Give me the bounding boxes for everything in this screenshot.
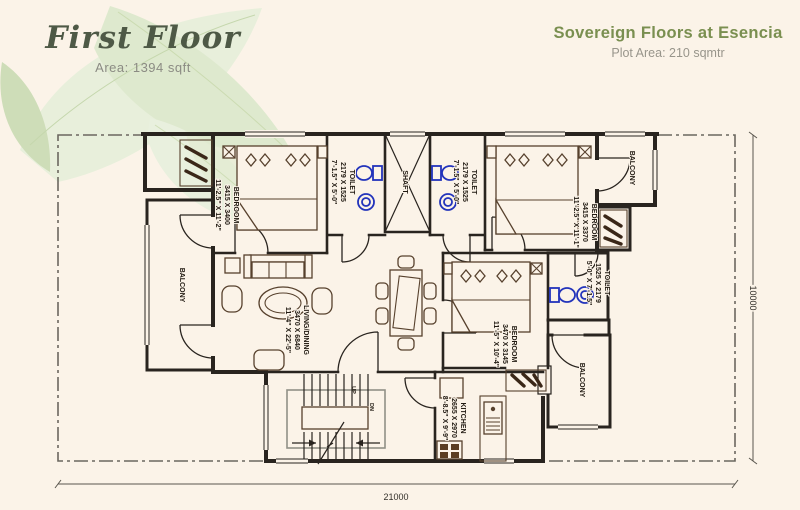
stairs-up-label: UP xyxy=(350,386,356,394)
window xyxy=(558,423,598,431)
svg-text:BEDROOM: BEDROOM xyxy=(232,187,239,224)
room-label-toilet-2: TOILET 2179 X 1525 7'-1.5" X 5'-0" xyxy=(452,160,477,205)
header-left: First Floor Area: 1394 sqft xyxy=(38,20,248,75)
svg-text:11'-5" X 10'-4": 11'-5" X 10'-4" xyxy=(492,321,499,367)
svg-text:7'-1.5" X 5'-0": 7'-1.5" X 5'-0" xyxy=(452,160,459,205)
plot-area-label: Plot Area: 210 sqmtr xyxy=(540,46,796,60)
svg-text:1525 X 2179: 1525 X 2179 xyxy=(594,263,601,303)
window xyxy=(262,385,270,450)
svg-text:SHAFT: SHAFT xyxy=(401,170,408,194)
dining-table xyxy=(376,256,436,350)
floor-area-label: Area: 1394 sqft xyxy=(38,60,248,75)
svg-text:11'-2.5" X 11'-1": 11'-2.5" X 11'-1" xyxy=(572,196,579,248)
svg-text:2179 X 1525: 2179 X 1525 xyxy=(461,162,468,202)
door-lobby xyxy=(338,332,378,372)
page: First Floor Area: 1394 sqft Sovereign Fl… xyxy=(0,0,800,510)
floor-title: First Floor xyxy=(38,20,248,56)
room-label-toilet-1: TOILET 2179 X 1525 7'-1.5" X 5'-0" xyxy=(330,160,355,205)
room-label-balcony-left: BALCONY xyxy=(178,268,185,303)
svg-text:7'-1.5" X 5'-0": 7'-1.5" X 5'-0" xyxy=(330,160,337,205)
room-label-balcony-bottom-right: BALCONY xyxy=(578,363,585,398)
svg-text:BEDROOM: BEDROOM xyxy=(590,204,597,241)
door-toilet-2 xyxy=(443,235,470,262)
dimension-right: 10000 xyxy=(748,132,758,464)
svg-text:2655 X 2970: 2655 X 2970 xyxy=(450,398,457,438)
room-label-bedroom-2: BEDROOM 3415 X 3370 11'-2.5" X 11'-1" xyxy=(572,196,597,248)
window xyxy=(276,457,308,465)
stairs-down-label: DN xyxy=(368,403,374,411)
sofa-set xyxy=(222,255,332,370)
room-label-toilet-3: TOILET 1525 X 2179 5'-0" X 7'-1.5" xyxy=(585,261,610,306)
svg-text:5'-0" X 7'-1.5": 5'-0" X 7'-1.5" xyxy=(585,261,592,306)
door-balcony-left-lower xyxy=(180,325,213,358)
door-balcony-top-right xyxy=(597,158,630,191)
window xyxy=(505,130,565,138)
svg-text:KITCHEN: KITCHEN xyxy=(459,402,466,433)
floor-plan: 21000 10000 xyxy=(0,0,800,510)
svg-text:TOILET: TOILET xyxy=(470,170,477,195)
door-balcony-left-upper xyxy=(180,215,213,248)
window xyxy=(390,130,425,138)
room-label-balcony-top-right: BALCONY xyxy=(628,151,635,186)
svg-text:BALCONY: BALCONY xyxy=(628,151,635,186)
dimension-right-label: 10000 xyxy=(748,285,758,310)
svg-text:BALCONY: BALCONY xyxy=(178,268,185,303)
svg-text:3470 X 6840: 3470 X 6840 xyxy=(293,310,300,350)
stairs: UP DN xyxy=(287,374,385,464)
stove-icon xyxy=(437,441,462,459)
room-label-bedroom-3: BEDROOM 3470 X 3145 11'-5" X 10'-4" xyxy=(492,321,517,367)
toilet-1-fixtures xyxy=(356,166,382,210)
svg-text:LIVING/DINING: LIVING/DINING xyxy=(302,305,309,355)
svg-text:8'-8.5" X 9'-9": 8'-8.5" X 9'-9" xyxy=(441,396,448,441)
svg-text:TOILET: TOILET xyxy=(603,271,610,296)
door-kitchen xyxy=(405,378,435,408)
svg-text:BALCONY: BALCONY xyxy=(578,363,585,398)
dimension-bottom-label: 21000 xyxy=(383,492,408,502)
svg-text:3415 X 3370: 3415 X 3370 xyxy=(581,202,588,242)
svg-text:TOILET: TOILET xyxy=(348,170,355,195)
room-label-bedroom-1: BEDROOM 3415 X 3400 11'-2.5" X 11'-2" xyxy=(214,179,239,231)
window xyxy=(143,225,151,345)
project-title: Sovereign Floors at Esencia xyxy=(540,24,796,43)
room-label-kitchen: KITCHEN 2655 X 2970 8'-8.5" X 9'-9" xyxy=(441,396,466,441)
svg-text:2179 X 1525: 2179 X 1525 xyxy=(339,162,346,202)
room-label-shaft: SHAFT xyxy=(401,170,408,194)
wardrobe-2 xyxy=(600,210,627,247)
dimension-bottom: 21000 xyxy=(55,480,738,502)
room-label-living-dining: LIVING/DINING 3470 X 6840 11'-4" X 22'-5… xyxy=(284,305,309,355)
svg-text:3470 X 3145: 3470 X 3145 xyxy=(501,324,508,364)
window xyxy=(651,150,659,190)
window xyxy=(245,130,305,138)
door-toilet-1 xyxy=(342,235,369,262)
svg-text:11'-2.5" X 11'-2": 11'-2.5" X 11'-2" xyxy=(214,179,221,231)
svg-text:3415 X 3400: 3415 X 3400 xyxy=(223,185,230,225)
svg-text:BEDROOM: BEDROOM xyxy=(510,326,517,363)
window xyxy=(605,130,645,138)
header-right: Sovereign Floors at Esencia Plot Area: 2… xyxy=(540,24,796,60)
svg-text:11'-4" X 22'-5": 11'-4" X 22'-5" xyxy=(284,307,291,353)
